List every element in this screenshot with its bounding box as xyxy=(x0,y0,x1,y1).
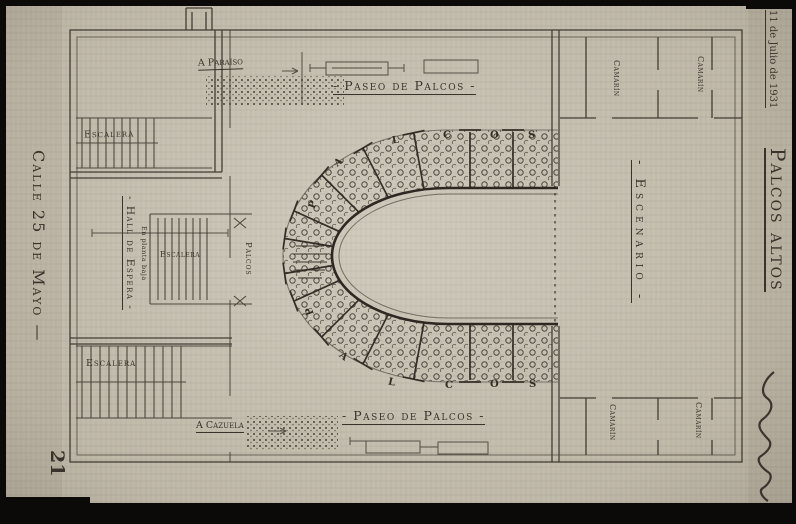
scan-border-corner-bl xyxy=(0,497,90,524)
promenade-top-label: - Paseo de Palcos - xyxy=(333,80,476,95)
street-label: Calle 25 de Mayo — xyxy=(30,150,46,343)
box-letter: O xyxy=(490,380,499,390)
box-letter: C xyxy=(445,381,453,391)
waiting-hall-note: En planta baja xyxy=(141,226,148,281)
staircases xyxy=(76,118,252,418)
dressing-room-label: Camarín xyxy=(696,56,704,93)
scan-border-top xyxy=(0,0,796,6)
box-letter: O xyxy=(490,131,499,141)
boxes-corridor-label: Palcos xyxy=(244,242,253,276)
to-cazuela-label: A Cazuela xyxy=(196,421,244,433)
page-title: Palcos altos xyxy=(764,148,788,292)
dressing-room-label: Camarín xyxy=(608,404,616,441)
waiting-hall-label: - Hall de Espera - xyxy=(123,196,136,310)
stair-middle-label: Escalera xyxy=(160,251,200,259)
page-number: 21 xyxy=(47,450,66,476)
scan-border-left xyxy=(0,0,6,524)
stair-top-label: Escalera xyxy=(84,130,134,140)
box-letter: C xyxy=(443,131,451,141)
date-note: 11 de Julio de 1931 xyxy=(765,10,777,108)
dressing-room-label: Camarín xyxy=(694,402,702,439)
scan-border-corner-tr xyxy=(746,0,796,9)
box-letter: L xyxy=(391,136,399,147)
stage-label: - Escenario - xyxy=(631,160,646,303)
signature-scribble xyxy=(759,372,774,501)
dressing-room-label: Camarín xyxy=(612,60,620,97)
box-letter: S xyxy=(529,380,536,390)
promenade-bottom-label: - Paseo de Palcos - xyxy=(342,410,485,425)
scan-border-right xyxy=(792,0,796,524)
to-paradise-label: A Paraíso xyxy=(198,57,243,70)
scan-border-bottom xyxy=(0,503,796,524)
stair-bottom-label: Escalera xyxy=(86,359,136,369)
box-letter: S xyxy=(528,131,535,141)
